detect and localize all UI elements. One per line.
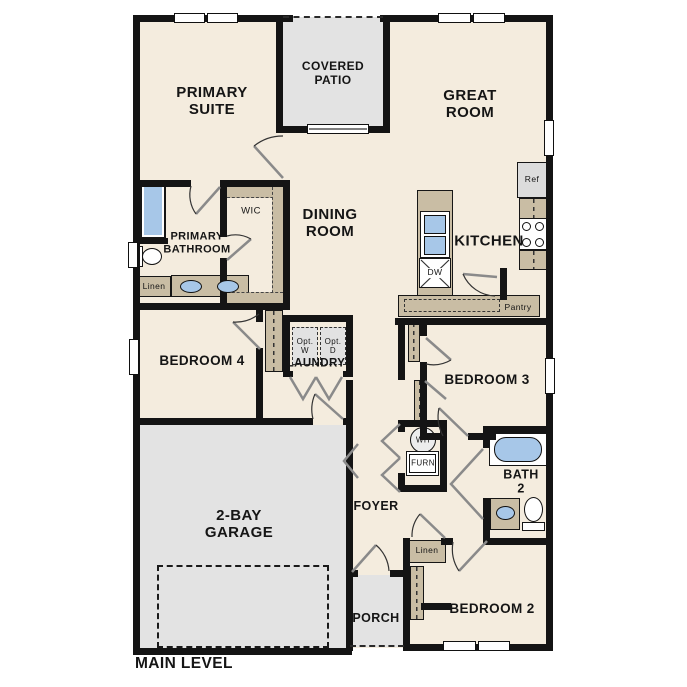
label-main-level: MAIN LEVEL (135, 655, 233, 673)
label-primary-bathroom: PRIMARY BATHROOM (163, 230, 230, 255)
label-linen-bathroom: Linen (143, 282, 166, 292)
label-kitchen: KITCHEN (454, 232, 523, 249)
label-porch: PORCH (352, 611, 399, 625)
label-optional-washer: Opt. W (297, 337, 314, 355)
label-water-heater: WH (416, 435, 430, 444)
label-great-room: GREAT ROOM (443, 87, 496, 122)
floor-plan: PRIMARY SUITE COVERED PATIO GREAT ROOM D… (0, 0, 687, 687)
label-wic: WIC (241, 207, 261, 218)
label-bath-2: BATH 2 (503, 468, 538, 497)
label-linen-hall: Linen (416, 546, 439, 556)
label-covered-patio: COVERED PATIO (302, 60, 364, 88)
label-furnace: FURN (411, 458, 435, 467)
label-dishwasher: DW (427, 268, 444, 278)
label-bedroom-3: BEDROOM 3 (444, 372, 529, 388)
label-laundry: LAUNDRY (287, 357, 346, 370)
door-swing-overlay (0, 0, 687, 687)
label-refrigerator: Ref (525, 175, 539, 185)
label-pantry: Pantry (505, 303, 532, 313)
label-dining-room: DINING ROOM (303, 206, 358, 241)
label-primary-suite: PRIMARY SUITE (176, 84, 247, 119)
label-garage: 2-BAY GARAGE (205, 507, 273, 542)
label-optional-dryer: Opt. D (325, 337, 342, 355)
label-bedroom-4: BEDROOM 4 (159, 353, 244, 369)
label-foyer: FOYER (353, 499, 398, 513)
label-bedroom-2: BEDROOM 2 (449, 601, 534, 617)
